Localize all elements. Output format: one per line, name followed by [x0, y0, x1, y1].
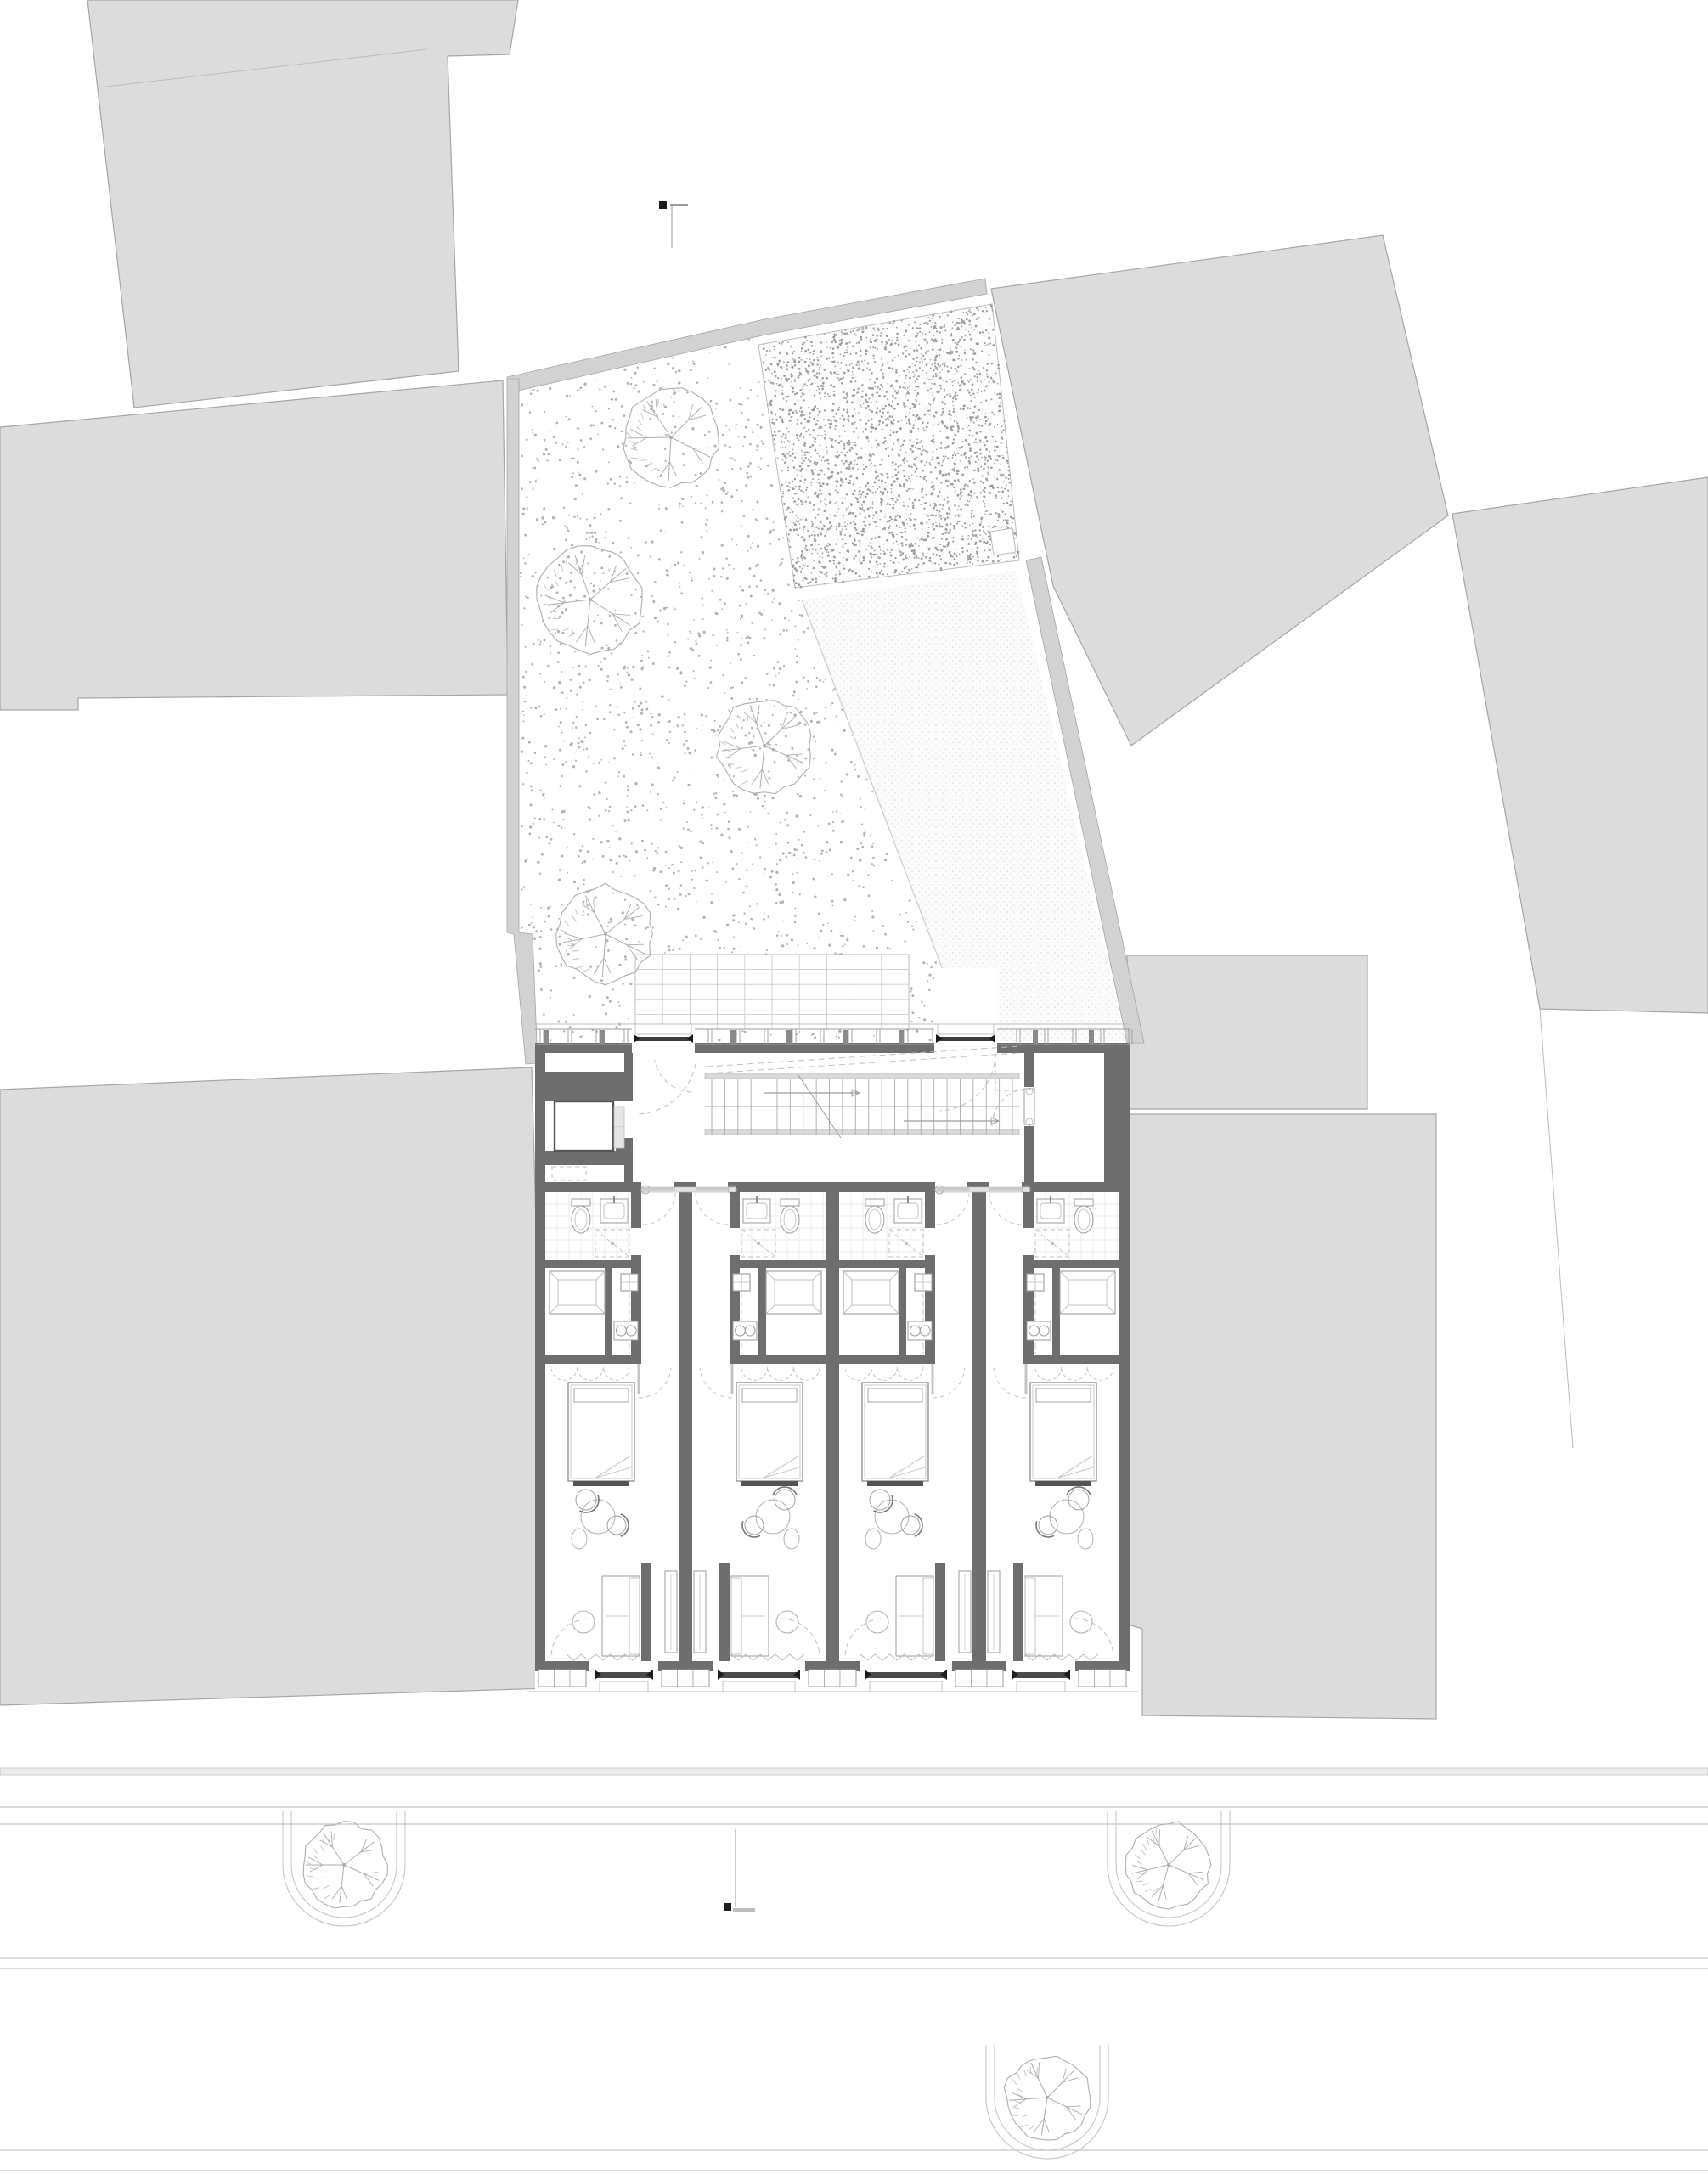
entrance-recess — [635, 1024, 691, 1034]
built-in-closet — [766, 1271, 821, 1314]
bathroom-bottom-wall — [839, 1260, 930, 1268]
elevator-door — [614, 1107, 624, 1127]
built-in-closet — [1060, 1271, 1115, 1314]
door-sill — [723, 1681, 795, 1692]
context-building-se-lower — [1125, 1114, 1436, 1719]
sideboard — [665, 1571, 677, 1653]
entry-wall-upper — [730, 1192, 740, 1228]
section-marker-square — [659, 201, 667, 209]
units-top-wall — [728, 1182, 935, 1192]
sidewalk-band — [0, 1768, 1708, 1775]
entry-wall-lower — [730, 1255, 740, 1364]
sofa — [1025, 1576, 1063, 1656]
kitchen-wall — [1052, 1268, 1060, 1357]
facade-post — [1033, 1030, 1038, 1044]
core-wall — [624, 1053, 633, 1072]
service-bottom-wall — [1023, 1355, 1119, 1364]
toilet — [572, 1199, 590, 1233]
sofa — [896, 1576, 933, 1656]
bed — [568, 1383, 634, 1486]
party-wall-2 — [826, 1192, 839, 1661]
washbasin — [1037, 1196, 1064, 1223]
east-room-wall — [1104, 1053, 1119, 1182]
door-sill — [870, 1681, 942, 1692]
door-sill — [600, 1681, 648, 1692]
context-building-w-upper — [0, 380, 508, 710]
entry-wall-lower — [631, 1255, 641, 1364]
context-building-w-lower — [0, 1067, 549, 1705]
facade-post — [1089, 1030, 1094, 1044]
service-bottom-wall — [545, 1355, 641, 1364]
facade-post — [730, 1030, 736, 1044]
entry-wall-upper — [631, 1192, 641, 1228]
context-building-se-upper — [1127, 955, 1367, 1109]
south-fixed-window — [809, 1670, 856, 1687]
facade-post — [600, 1030, 605, 1044]
sofa — [731, 1576, 769, 1656]
kitchen-wall — [605, 1268, 612, 1357]
service-bottom-wall — [839, 1355, 935, 1364]
service-bottom-wall — [730, 1355, 826, 1364]
core-wall — [545, 1072, 633, 1101]
kitchen-sink — [908, 1321, 932, 1340]
south-stub-wall — [935, 1563, 945, 1661]
door-sill — [1017, 1681, 1065, 1692]
built-in-closet — [843, 1271, 899, 1314]
bed — [736, 1383, 803, 1486]
core-wall — [624, 1165, 633, 1182]
sideboard — [988, 1571, 1000, 1653]
facade-post — [843, 1030, 848, 1044]
facade-post — [786, 1030, 792, 1044]
units-top-wall — [1022, 1182, 1119, 1192]
core-wall — [545, 1151, 633, 1165]
washbasin — [600, 1196, 628, 1223]
elevator — [555, 1101, 624, 1151]
south-stub-wall — [719, 1563, 730, 1661]
east-room-wall — [1024, 1053, 1034, 1087]
entry-wall-upper — [925, 1192, 935, 1228]
stair-landing-edge — [705, 1129, 1019, 1135]
units-top-wall — [545, 1182, 641, 1192]
toilet — [865, 1199, 884, 1233]
south-fixed-window — [538, 1670, 586, 1687]
elevator-cab — [555, 1101, 613, 1151]
east-room-door — [1024, 1089, 1034, 1124]
site-plan-drawing — [0, 0, 1708, 2174]
bathroom-bottom-wall — [1029, 1260, 1119, 1268]
entry-wall-lower — [1023, 1255, 1034, 1364]
party-wall-1 — [679, 1192, 692, 1661]
entry-wall-upper — [1023, 1192, 1034, 1228]
bathroom-bottom-wall — [735, 1260, 826, 1268]
south-stub-wall — [641, 1563, 651, 1661]
kitchen-wall — [899, 1268, 906, 1357]
bed-paver — [990, 528, 1016, 555]
sideboard — [959, 1571, 971, 1653]
entrance-door — [634, 1037, 693, 1041]
planting-bed-outline — [758, 304, 1019, 588]
sofa — [602, 1576, 640, 1656]
kitchen-sink — [733, 1321, 757, 1340]
bed — [1030, 1383, 1096, 1486]
sideboard — [694, 1571, 706, 1653]
toilet — [781, 1199, 799, 1233]
section-marker-square — [724, 1903, 731, 1911]
planting-bed — [758, 304, 1020, 588]
facade-post — [544, 1030, 549, 1044]
south-fixed-window — [1079, 1670, 1126, 1687]
south-fixed-window — [662, 1670, 709, 1687]
east-wall — [1119, 1043, 1130, 1671]
toilet — [1074, 1199, 1093, 1233]
kitchen-sink — [1027, 1321, 1051, 1340]
east-room-wall — [1024, 1126, 1034, 1182]
residential-building — [527, 1024, 1138, 1692]
bed — [862, 1383, 928, 1486]
facade-post — [899, 1030, 904, 1044]
stair-landing-edge — [705, 1073, 1019, 1079]
entrance-door — [936, 1037, 995, 1041]
bathroom-bottom-wall — [545, 1260, 636, 1268]
west-wall — [535, 1043, 545, 1671]
elevator-door — [614, 1129, 624, 1148]
entrance-recess — [938, 1024, 994, 1034]
south-stub-wall — [1013, 1563, 1023, 1661]
kitchen-wall — [758, 1268, 766, 1357]
built-in-closet — [550, 1271, 605, 1314]
party-wall-3 — [972, 1192, 986, 1661]
kitchen-sink — [614, 1321, 638, 1340]
washbasin — [894, 1196, 922, 1223]
entry-wall-lower — [925, 1255, 935, 1364]
garden-entrance-1 — [632, 1024, 695, 1045]
garden-entrance-2 — [934, 1024, 997, 1045]
floor-plan-svg — [0, 0, 1708, 2174]
timber-deck — [635, 955, 909, 1029]
south-fixed-window — [955, 1670, 1003, 1687]
washbasin — [743, 1196, 770, 1223]
